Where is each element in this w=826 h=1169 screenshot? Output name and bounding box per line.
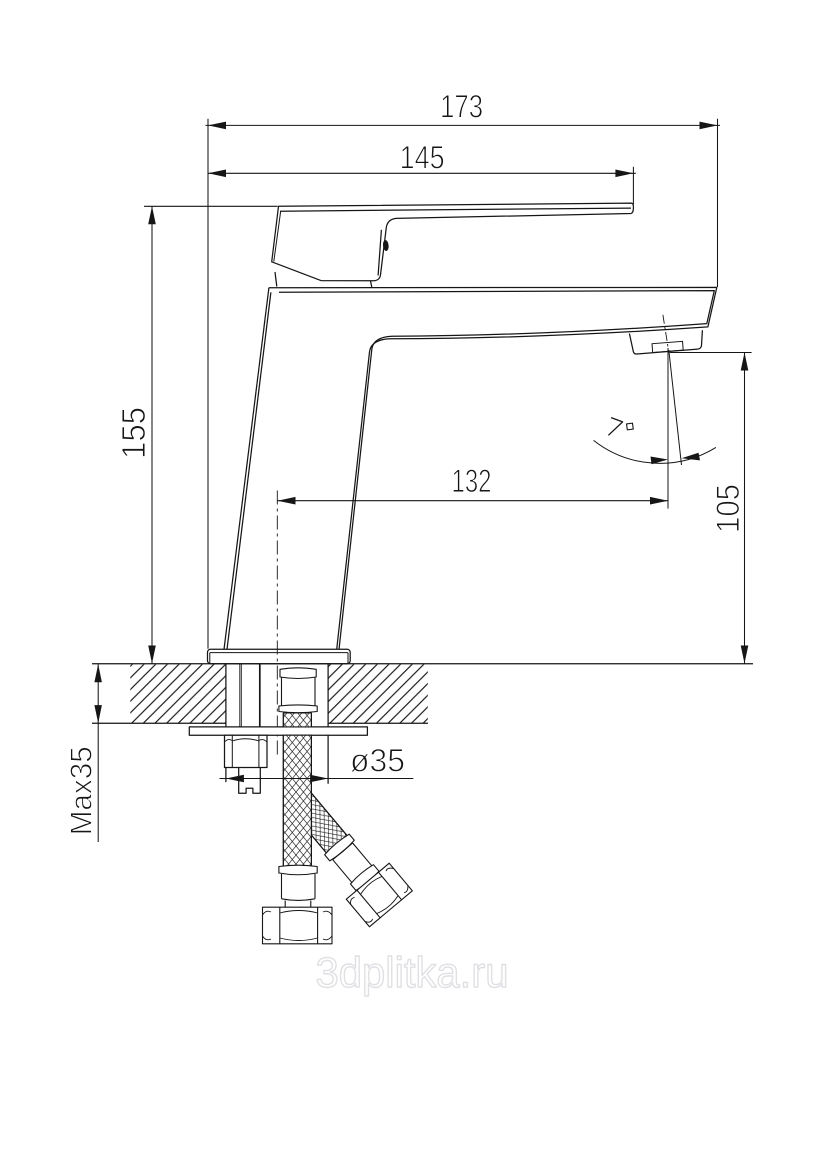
svg-text:145: 145 [400, 139, 445, 175]
svg-text:173: 173 [440, 89, 483, 125]
svg-text:Max35: Max35 [64, 746, 99, 835]
svg-text:155: 155 [115, 407, 152, 459]
svg-text:3dplitka.ru: 3dplitka.ru [316, 949, 509, 997]
svg-text:132: 132 [452, 463, 492, 499]
svg-text:ø35: ø35 [350, 742, 405, 778]
svg-text:105: 105 [710, 484, 746, 533]
